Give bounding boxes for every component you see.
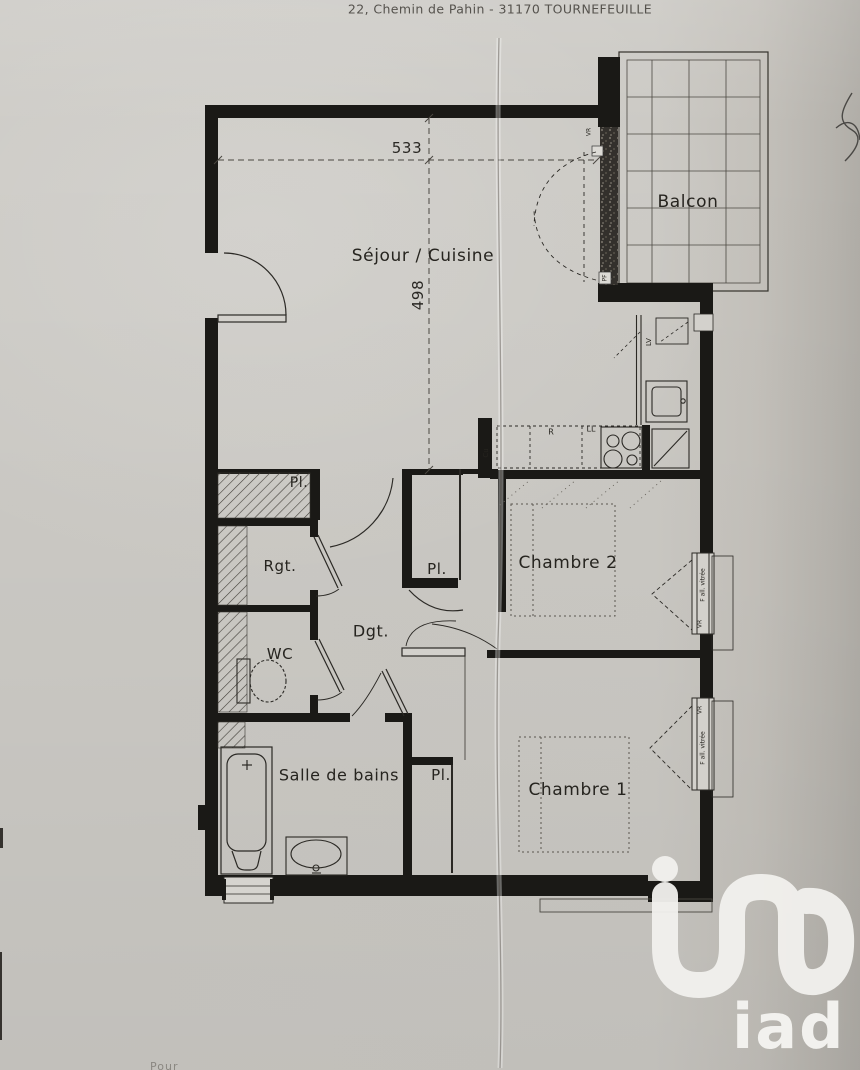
doors — [218, 152, 596, 716]
bay-label-pf: PF — [602, 274, 609, 281]
floorplan-photo: 22, Chemin de Pahin - 31170 TOURNEFEUILL… — [0, 0, 860, 1070]
address-header: 22, Chemin de Pahin - 31170 TOURNEFEUILL… — [348, 2, 652, 17]
room-label-sdb: Salle de bains — [279, 766, 399, 785]
radiator — [222, 877, 274, 903]
bathtub — [221, 747, 272, 874]
room-label-wc: WC — [267, 645, 294, 663]
room-label-chambre2: Chambre 2 — [518, 553, 617, 573]
iad-logo-text: iad — [732, 996, 845, 1058]
pen-squiggle — [836, 93, 860, 161]
iad-logo-monogram — [652, 856, 841, 985]
dimension-lines — [214, 114, 601, 474]
edge-fragments — [0, 828, 3, 1040]
appliance-kitchen-tag: Cu — [482, 448, 490, 457]
windows — [650, 553, 733, 797]
shutter-label-bay: VR — [586, 128, 593, 136]
shutter-label-chambre1: VR — [697, 706, 704, 714]
floorplan-drawing — [0, 0, 860, 1070]
balcony-tiles — [619, 52, 768, 291]
appliance-dishwasher: LV — [645, 338, 653, 346]
closet-label-pl2: Pl. — [427, 560, 447, 578]
kitchen — [497, 314, 713, 468]
dimension-depth: 498 — [409, 280, 427, 310]
closet-label-pl3: Pl. — [431, 766, 451, 784]
bay-top-box — [592, 146, 603, 156]
paper-crease — [497, 38, 501, 1068]
pl-closet-side — [459, 469, 461, 580]
appliance-washer: LL — [587, 425, 596, 434]
room-label-chambre1: Chambre 1 — [528, 780, 627, 800]
washbasin — [286, 837, 347, 875]
counter — [497, 426, 640, 468]
room-label-sejour: Séjour / Cuisine — [352, 246, 494, 266]
dimension-width: 533 — [392, 139, 422, 157]
cooktop — [601, 427, 642, 468]
closet-label-pl1: Pl. — [290, 475, 309, 491]
room-label-dgt: Dgt. — [353, 622, 389, 641]
room-label-rgt: Rgt. — [264, 557, 297, 575]
room-label-balcon: Balcon — [658, 192, 719, 212]
window-label-chambre2: F all. vitrée — [700, 568, 707, 601]
appliance-fridge: R — [548, 428, 554, 437]
window-label-chambre1: F all. vitrée — [700, 731, 707, 764]
footer-text-fragment: Pour — [150, 1060, 178, 1070]
shutter-label-chambre2: VR — [697, 620, 704, 628]
pl3-closet-side — [451, 765, 453, 873]
